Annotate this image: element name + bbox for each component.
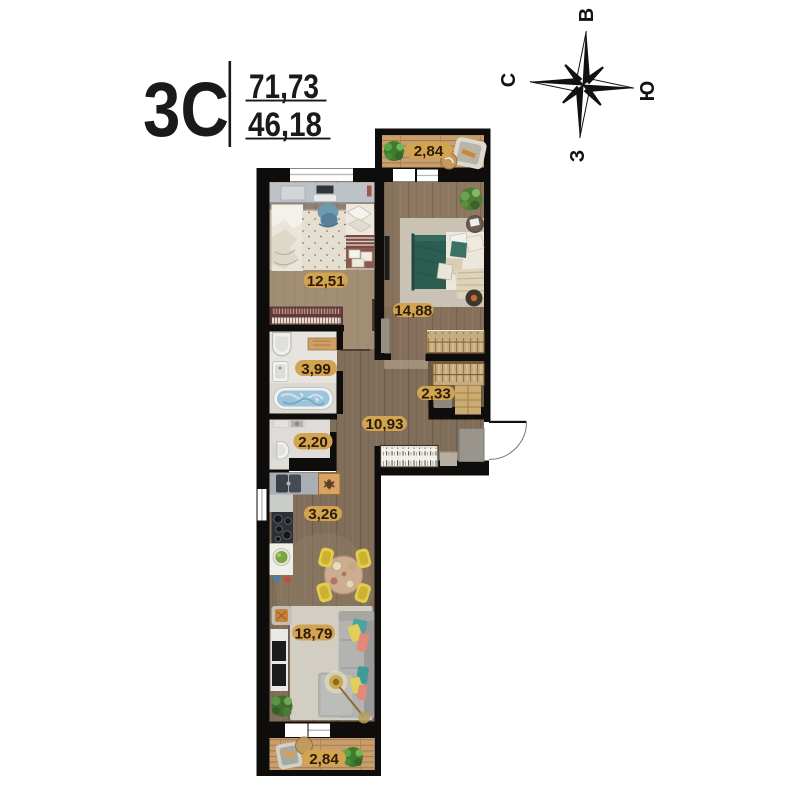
svg-text:2,84: 2,84 [309, 751, 339, 768]
svg-text:3С: 3С [143, 67, 229, 153]
svg-text:10,93: 10,93 [365, 416, 403, 433]
svg-text:12,51: 12,51 [307, 273, 346, 290]
svg-text:Ю: Ю [637, 81, 659, 102]
svg-text:В: В [576, 8, 598, 22]
svg-text:З: З [567, 150, 589, 163]
svg-text:2,84: 2,84 [414, 143, 444, 160]
svg-text:С: С [498, 73, 520, 87]
svg-text:3,99: 3,99 [301, 361, 331, 378]
svg-text:14,88: 14,88 [394, 302, 432, 319]
svg-text:3,26: 3,26 [308, 506, 338, 523]
svg-text:2,20: 2,20 [298, 434, 328, 451]
svg-text:2,33: 2,33 [421, 385, 451, 402]
svg-text:18,79: 18,79 [294, 626, 332, 643]
